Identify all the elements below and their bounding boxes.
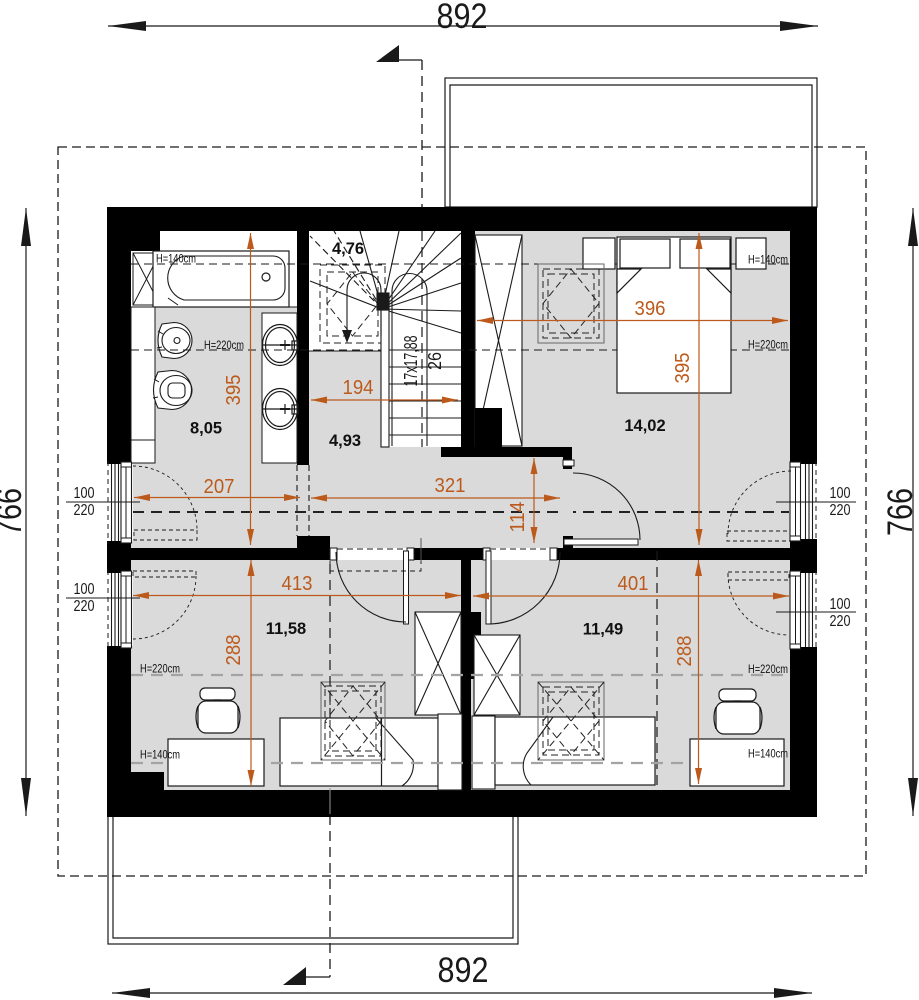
svg-text:220: 220 (830, 502, 851, 519)
svg-text:892: 892 (438, 951, 489, 990)
svg-text:17x17,88: 17x17,88 (401, 336, 421, 387)
svg-text:207: 207 (204, 475, 235, 498)
svg-text:288: 288 (673, 636, 696, 667)
svg-text:H=220cm: H=220cm (748, 662, 788, 676)
svg-text:114: 114 (506, 502, 529, 533)
svg-text:288: 288 (222, 635, 245, 666)
svg-text:4,76: 4,76 (332, 240, 364, 258)
svg-text:220: 220 (74, 502, 95, 519)
svg-text:26: 26 (425, 352, 445, 370)
svg-text:11,58: 11,58 (266, 620, 306, 638)
svg-text:395: 395 (222, 375, 245, 406)
svg-text:H=220cm: H=220cm (140, 662, 180, 676)
svg-text:4,93: 4,93 (329, 432, 361, 450)
svg-text:892: 892 (437, 0, 488, 36)
svg-text:H=220cm: H=220cm (748, 338, 788, 352)
svg-text:14,02: 14,02 (624, 417, 665, 435)
svg-text:413: 413 (282, 572, 313, 595)
svg-text:766: 766 (881, 488, 919, 536)
svg-text:395: 395 (671, 353, 694, 384)
svg-text:H=140cm: H=140cm (748, 253, 788, 267)
svg-text:220: 220 (830, 613, 851, 630)
svg-text:100: 100 (830, 596, 851, 613)
svg-text:100: 100 (74, 581, 95, 598)
svg-text:396: 396 (635, 297, 666, 320)
svg-text:321: 321 (435, 474, 466, 497)
svg-text:H=220cm: H=220cm (204, 338, 244, 352)
svg-text:8,05: 8,05 (190, 420, 222, 438)
svg-text:H=140cm: H=140cm (748, 747, 788, 761)
svg-text:401: 401 (618, 572, 649, 595)
svg-text:194: 194 (343, 376, 374, 399)
svg-text:H=140cm: H=140cm (156, 252, 196, 266)
svg-text:100: 100 (74, 485, 95, 502)
svg-text:220: 220 (74, 598, 95, 615)
svg-text:11,49: 11,49 (583, 621, 623, 639)
svg-text:766: 766 (0, 488, 29, 536)
svg-text:H=140cm: H=140cm (140, 748, 180, 762)
svg-text:100: 100 (830, 485, 851, 502)
